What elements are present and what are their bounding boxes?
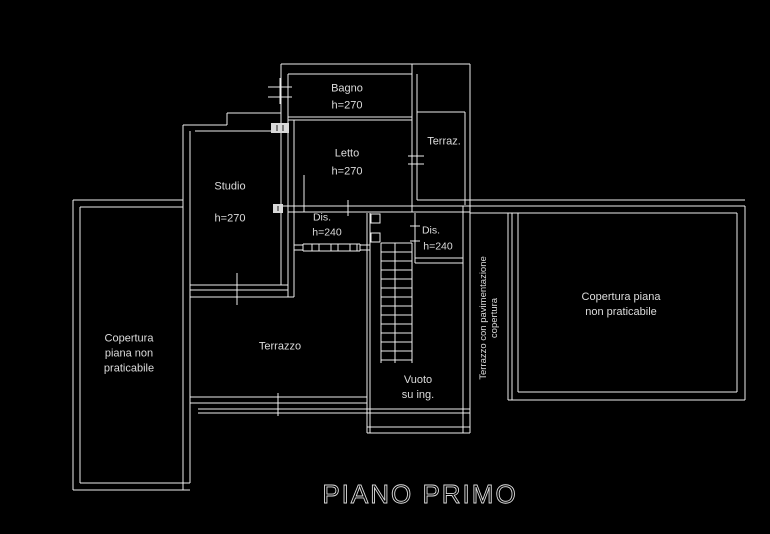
copertura-right-line1: Copertura piana: [582, 290, 661, 305]
terrazzo-copertura-line1: Terrazzo con pavimentazione: [478, 256, 489, 380]
room-label-copertura-right: Copertura piana non praticabile: [582, 290, 661, 320]
room-label-studio: Studio: [214, 181, 245, 194]
stair-pier: [371, 214, 380, 223]
room-label-terraz: Terraz.: [427, 136, 461, 149]
walls-outline: [73, 64, 745, 490]
room-label-letto: Letto: [335, 148, 359, 161]
stair-pier: [371, 233, 380, 242]
dimension-ticks: [237, 78, 424, 416]
room-label-bagno: Bagno: [331, 83, 363, 96]
room-label-copertura-left: Copertura piana non praticabile: [104, 332, 154, 377]
section-marker-boxes: [271, 123, 289, 213]
copertura-left-line1: Copertura: [104, 332, 154, 347]
floor-plan-drawing: PIANO PRIMO: [0, 0, 770, 534]
window-symbol: [303, 244, 360, 251]
copertura-left-line3: praticabile: [104, 362, 154, 377]
room-label-vuoto: Vuoto su ing.: [402, 373, 434, 403]
terrazzo-copertura-line2: copertura: [489, 256, 500, 380]
staircase-treads: [381, 243, 412, 363]
room-label-terrazzo: Terrazzo: [259, 341, 301, 354]
room-height-dis-left: h=240: [312, 227, 342, 240]
room-label-dis-right: Dis.: [422, 225, 440, 238]
vuoto-line2: su ing.: [402, 388, 434, 403]
room-label-terrazzo-copertura: Terrazzo con pavimentazione copertura: [478, 256, 500, 380]
room-height-letto: h=270: [332, 166, 363, 179]
copertura-left-line2: piana non: [104, 347, 154, 362]
vuoto-line1: Vuoto: [402, 373, 434, 388]
room-label-dis-left: Dis.: [313, 212, 331, 225]
plan-title: PIANO PRIMO: [322, 479, 517, 509]
room-height-dis-right: h=240: [423, 241, 453, 254]
floor-plan-page: PIANO PRIMO Bagno h=270 Letto h=270 Stud…: [0, 0, 770, 534]
room-height-studio: h=270: [215, 213, 246, 226]
room-height-bagno: h=270: [332, 100, 363, 113]
copertura-right-line2: non praticabile: [582, 305, 661, 320]
